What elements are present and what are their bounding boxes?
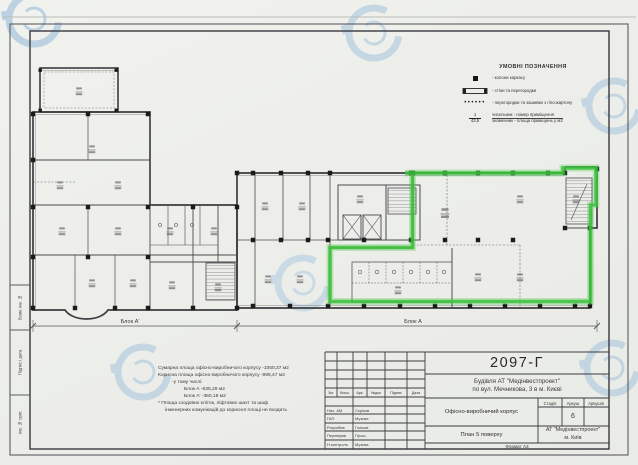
sig-name: Сєріков [355,406,385,415]
sig-header-pidpys: Підпис [385,388,407,397]
project-line1: Будівля АТ "Медінвестпроект" [474,378,560,385]
sheet-header: Аркуш [562,399,584,407]
sig-header-data: Дата [407,388,425,397]
sig-header-ndoc: №док [367,388,385,397]
legend-item-label: - перегородки та зашивки з гіпсокартону [492,101,572,106]
note-line: інженерних комунікацій до корисної площі… [158,408,330,415]
sig-role: Нач. АМ [327,406,353,415]
note-line: * Площа сходових кліток, ліфтових шахт т… [158,401,330,408]
legend: УМОВНІ ПОЗНАЧЕННЯ - колони каркасу - сті… [458,64,608,131]
strip-inv-oryg: Інв. № ориг. [10,395,30,449]
sig-role: ГАП [327,415,353,424]
fraction-explanation: чисельник - номер приміщення знаменник -… [492,113,563,125]
sig-role: Перевірив [327,432,353,441]
sig-name: Музика [355,415,385,424]
strip-vzam-inv: Взам. інв. № [10,285,30,330]
drawing-sheet: Блок А' Блок А УМОВНІ ПОЗНАЧЕННЯ - колон… [0,0,638,465]
legend-title: УМОВНІ ПОЗНАЧЕННЯ [458,64,608,70]
sig-role: Н.контроль [327,440,353,449]
note-line: Блок А -635,29 м2 [158,387,330,394]
highlighted-area-outline [330,168,596,302]
company-line2: м. Київ [564,435,581,441]
watermark-logos [0,0,638,407]
legend-item-label: - стіни та перегородки [492,89,536,94]
sig-header-kilk: Кільк. [337,388,353,397]
sig-name: Музика [355,440,385,449]
sig-name: Голіков [355,423,385,432]
block-a-label: Блок А [404,319,422,325]
note-line: Блок А' -360,18 м2 [158,394,330,401]
wall-symbol [458,87,492,95]
stage-header: Стадія [538,399,562,407]
block-a1-label: Блок А' [121,319,140,325]
fraction-denominator: 43,5 [469,118,481,124]
area-notes: Сумарна площа офісно-виробничого корпусу… [158,366,330,415]
note-line: Корисна площа офісно-виробничого корпусу… [158,373,330,380]
project-line2: по вул. Мечникова, 3 в м. Києві [472,386,561,393]
toilet-fixtures [158,223,452,302]
object-name: Офісно-виробничий корпус [427,399,536,425]
sig-header-ark: Арк. [353,388,367,397]
sheet-number: 6 [562,408,584,425]
fraction-line2: знаменник - площа приміщень у м2 [492,119,563,124]
legend-item-fraction: 143,5 чисельник - номер приміщення знаме… [458,113,608,125]
legend-item-columns: - колони каркасу [458,76,608,81]
legend-item-label: - колони каркасу [492,76,525,81]
interior-walls [33,112,590,310]
column-symbol [458,76,492,81]
legend-item-partitions: •••••• - перегородки та зашивки з гіпсок… [458,101,608,106]
note-line: -у тому числі: [158,380,330,387]
company-name: АТ "Медінвестпроект" м. Київ [538,427,608,442]
dotted-line-symbol: •••••• [458,102,492,105]
sheet-name: План 5 поверху [427,427,536,442]
block-dimension-line [30,320,600,332]
sig-name: Прош [355,432,385,441]
sig-role: Розробив [327,423,353,432]
format-label: Формат А3 [427,443,607,449]
note-line: Сумарна площа офісно-виробничого корпусу… [158,366,330,373]
room-number-symbol: 143,5 [458,113,492,123]
sheets-header: Аркушів [584,399,608,407]
stairs-and-elevators [206,178,592,300]
project-title: Будівля АТ "Медінвестпроект" по вул. Меч… [427,375,607,397]
legend-item-walls: - стіни та перегородки [458,87,608,95]
strip-pidpys-data: Підпис і дата [10,330,30,395]
company-line1: АТ "Медінвестпроект" [546,427,600,433]
sig-header-zm: Зм. [325,388,337,397]
document-number: 2097-Г [427,353,607,373]
